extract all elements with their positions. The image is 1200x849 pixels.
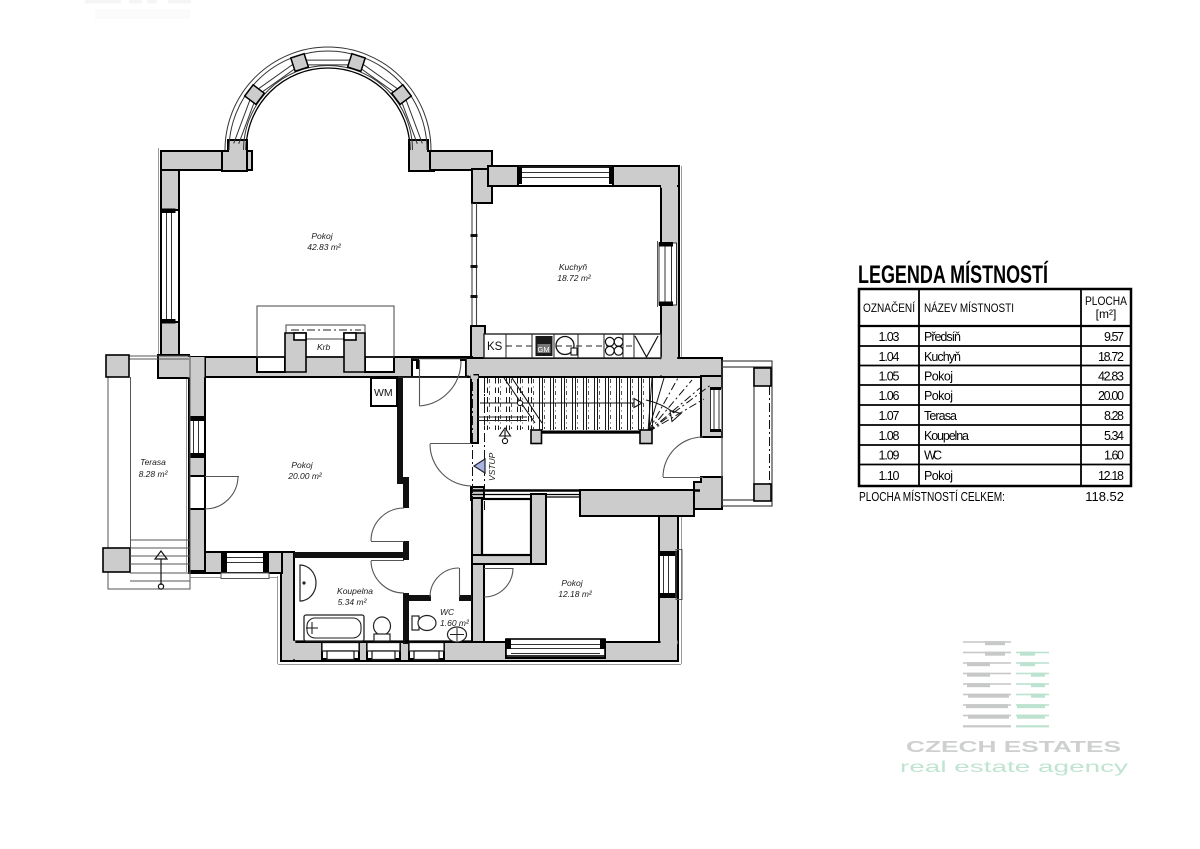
svg-text:9.57: 9.57 — [1104, 330, 1124, 344]
svg-text:Pokoj: Pokoj — [924, 389, 953, 403]
svg-text:Pokoj: Pokoj — [311, 231, 333, 241]
svg-text:20.00 m²: 20.00 m² — [287, 471, 323, 481]
svg-text:Krb: Krb — [317, 342, 331, 352]
svg-text:WC: WC — [924, 449, 942, 463]
svg-text:Pokoj: Pokoj — [924, 370, 953, 384]
svg-text:PLOCHA MÍSTNOSTÍ CELKEM:: PLOCHA MÍSTNOSTÍ CELKEM: — [859, 489, 1005, 504]
svg-text:LEGENDA MÍSTNOSTÍ: LEGENDA MÍSTNOSTÍ — [858, 260, 1049, 289]
svg-text:PLOCHA: PLOCHA — [1085, 294, 1127, 308]
svg-text:Terasa: Terasa — [140, 457, 166, 467]
svg-text:8.28: 8.28 — [1104, 409, 1124, 423]
svg-text:18.72 m²: 18.72 m² — [557, 273, 592, 283]
svg-text:Pokoj: Pokoj — [291, 460, 313, 470]
svg-text:12.18: 12.18 — [1098, 469, 1124, 483]
svg-text:1.04: 1.04 — [879, 350, 900, 364]
svg-text:Kuchyň: Kuchyň — [924, 350, 961, 364]
svg-text:OZNAČENÍ: OZNAČENÍ — [863, 300, 916, 315]
svg-text:42.83: 42.83 — [1098, 370, 1124, 384]
svg-text:12.18 m²: 12.18 m² — [558, 589, 593, 599]
svg-text:1.60: 1.60 — [1104, 449, 1124, 463]
svg-text:1.06: 1.06 — [879, 389, 900, 403]
svg-text:KS: KS — [487, 341, 503, 353]
svg-text:42.83 m²: 42.83 m² — [307, 242, 342, 252]
svg-text:Pokoj: Pokoj — [561, 578, 583, 588]
svg-text:1.60 m²: 1.60 m² — [440, 618, 470, 628]
svg-text:Kuchyň: Kuchyň — [559, 262, 588, 272]
svg-text:NÁZEV MÍSTNOSTI: NÁZEV MÍSTNOSTI — [924, 300, 1014, 315]
svg-text:CZECH ESTATES: CZECH ESTATES — [906, 739, 1122, 756]
svg-text:GM: GM — [538, 345, 550, 354]
svg-text:Koupelna: Koupelna — [337, 586, 373, 596]
svg-text:Koupelna: Koupelna — [924, 429, 969, 443]
svg-text:WC: WC — [440, 607, 455, 617]
svg-text:1.08: 1.08 — [879, 429, 900, 443]
svg-text:1.05: 1.05 — [879, 370, 900, 384]
svg-text:Pokoj: Pokoj — [924, 469, 953, 483]
svg-text:[m²]: [m²] — [1096, 307, 1117, 321]
svg-text:WM: WM — [374, 387, 393, 399]
svg-text:1.10: 1.10 — [879, 469, 900, 483]
svg-text:1.03: 1.03 — [879, 330, 900, 344]
svg-text:Terasa: Terasa — [924, 409, 957, 423]
svg-text:5.34 m²: 5.34 m² — [338, 597, 368, 607]
svg-text:8.28 m²: 8.28 m² — [139, 469, 169, 479]
svg-text:20.00: 20.00 — [1098, 389, 1124, 403]
svg-text:18.72: 18.72 — [1098, 350, 1124, 364]
svg-text:5.34: 5.34 — [1104, 429, 1124, 443]
svg-text:Předsíň: Předsíň — [924, 330, 961, 344]
svg-text:118.52: 118.52 — [1085, 489, 1124, 504]
svg-text:1.09: 1.09 — [879, 449, 900, 463]
svg-text:VSTUP: VSTUP — [487, 452, 497, 481]
svg-text:1.07: 1.07 — [879, 409, 900, 423]
svg-text:real estate agency: real estate agency — [900, 759, 1128, 776]
